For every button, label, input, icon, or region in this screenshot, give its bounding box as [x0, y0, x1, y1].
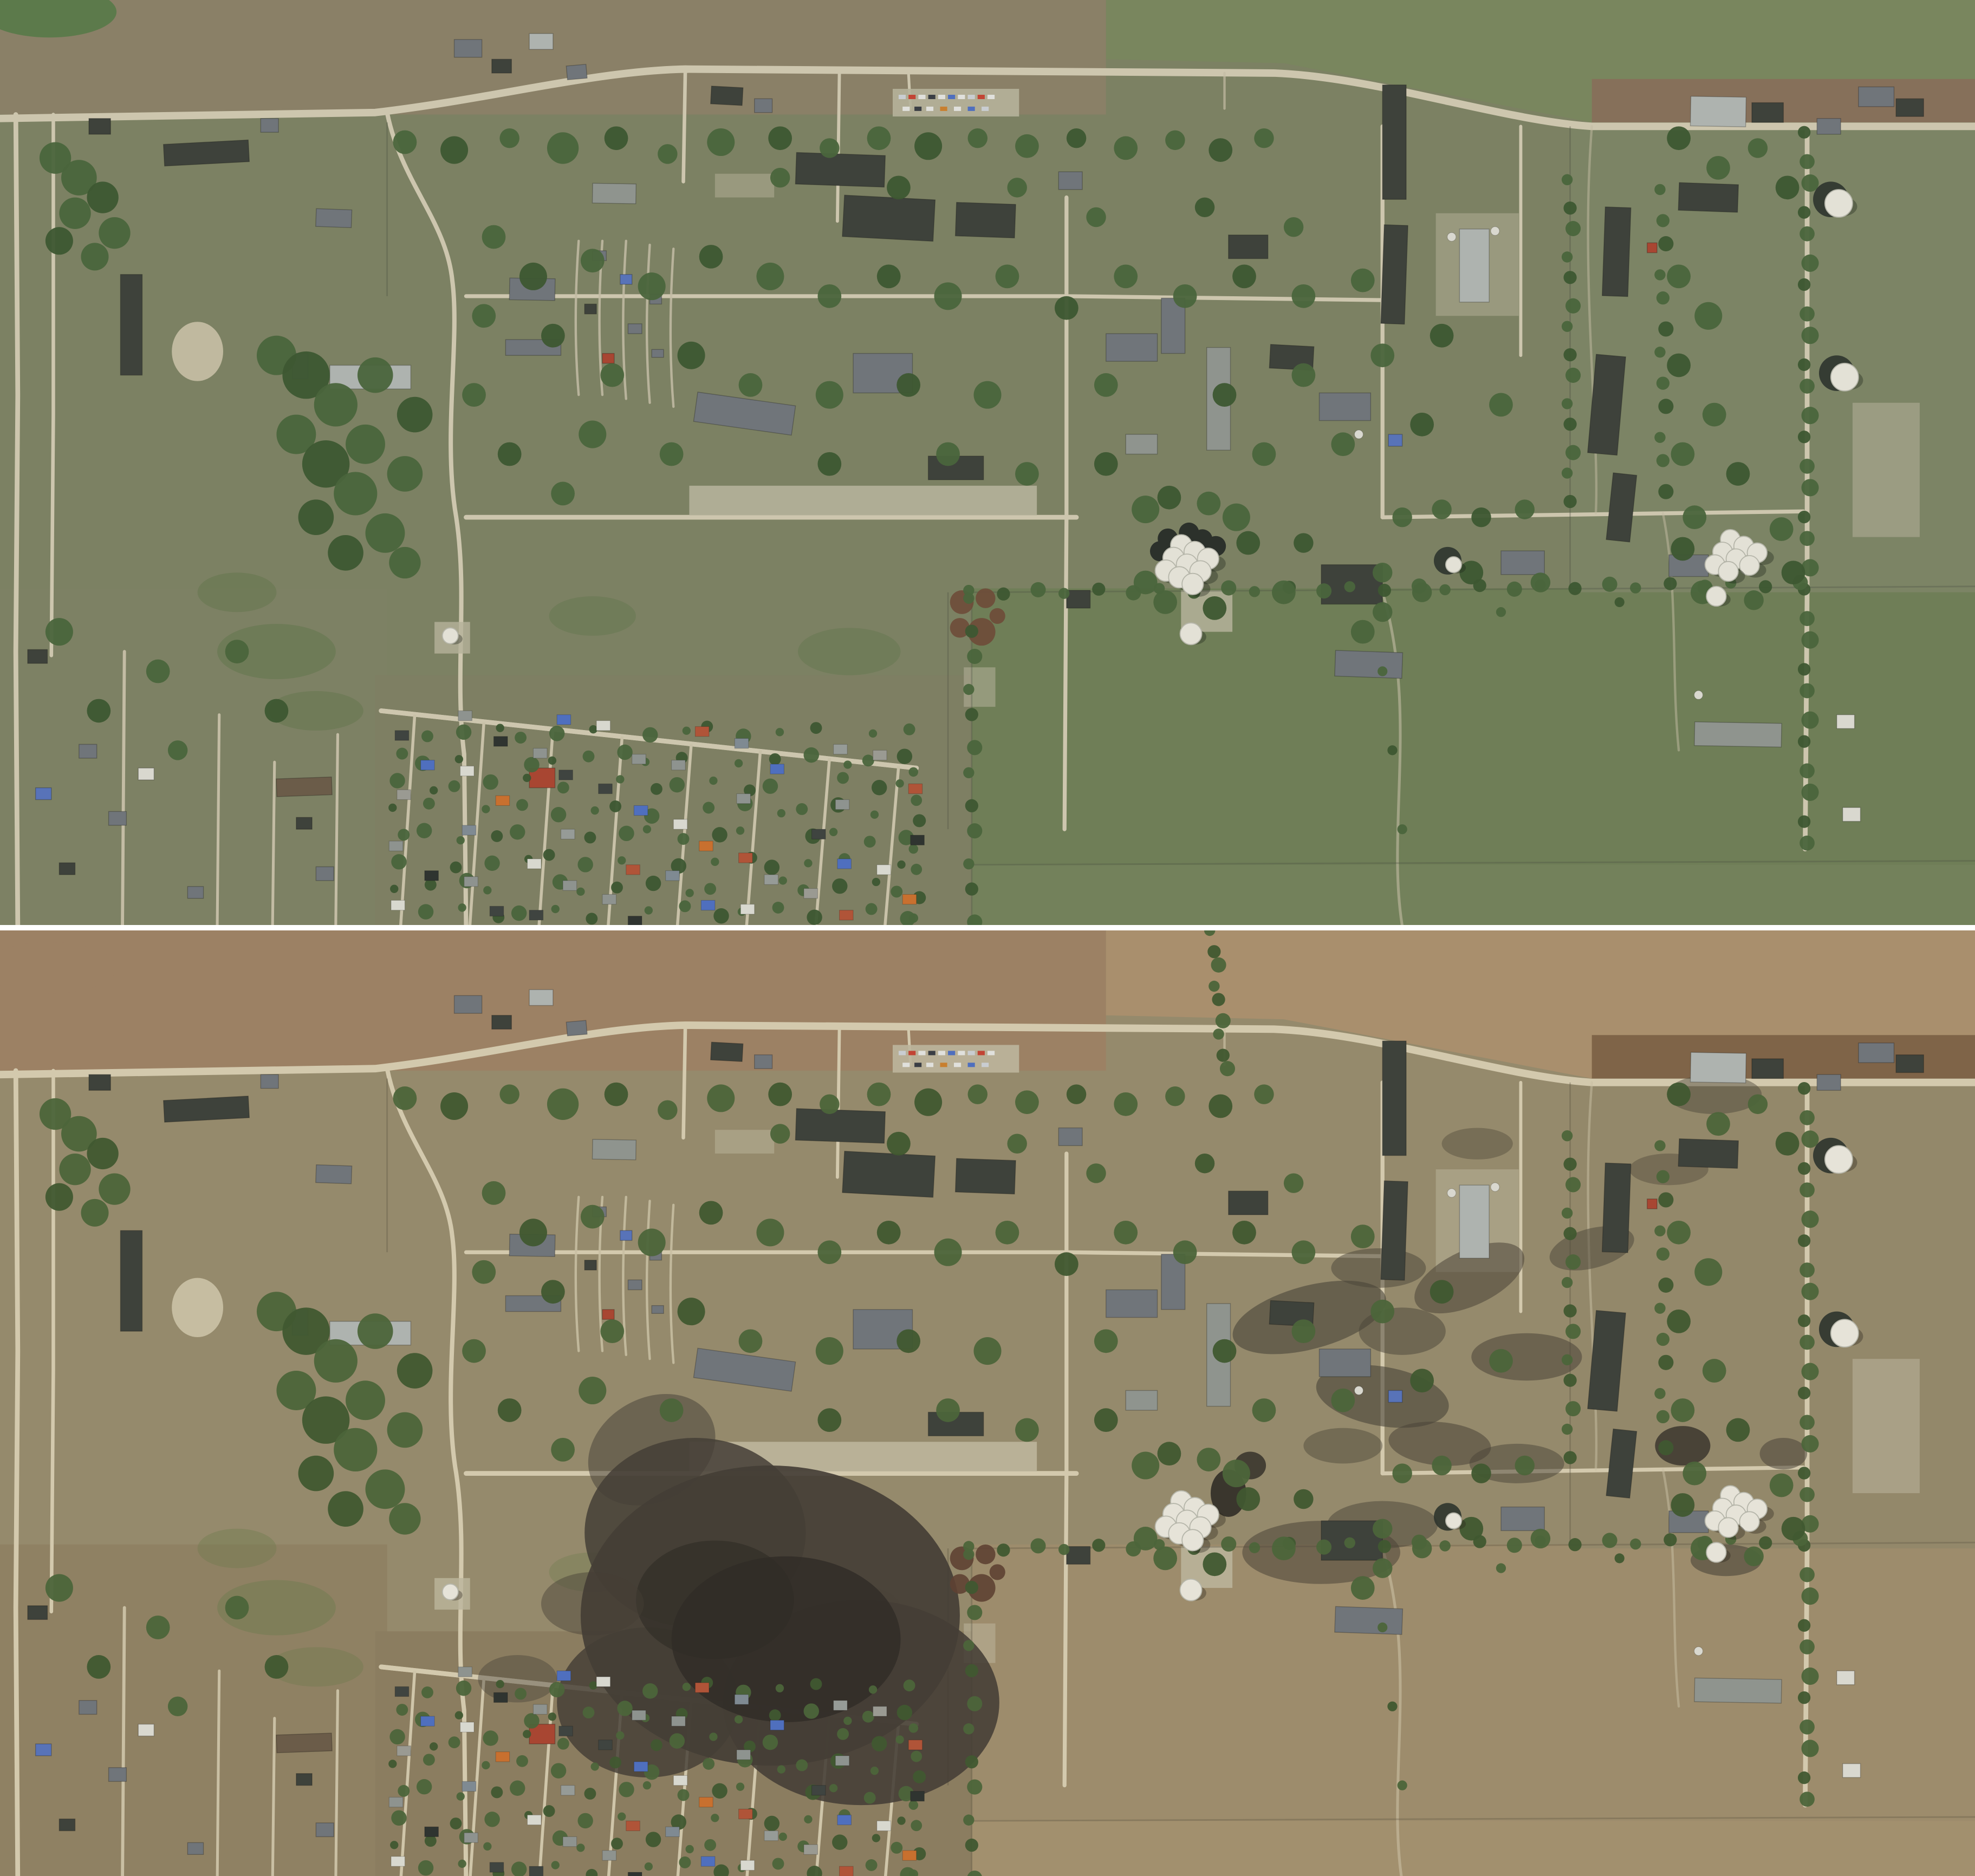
- building: [1694, 1678, 1782, 1703]
- tree-cluster: [703, 802, 714, 814]
- tree-cluster: [591, 1762, 599, 1770]
- tree-cluster: [1212, 993, 1225, 1006]
- tree-cluster: [1568, 1538, 1581, 1551]
- tree-cluster: [997, 588, 1010, 601]
- tree-cluster: [617, 745, 632, 760]
- tree-cluster: [483, 1842, 491, 1851]
- tree-cluster: [1158, 486, 1181, 510]
- tree-cluster: [686, 889, 694, 897]
- tree-cluster: [450, 862, 462, 874]
- village-house: [462, 1781, 476, 1791]
- tree-cluster: [1067, 128, 1086, 148]
- building: [261, 1074, 278, 1089]
- small-dome: [1447, 1189, 1456, 1197]
- tree-cluster: [265, 1655, 289, 1679]
- building: [316, 1823, 334, 1837]
- tree-cluster: [609, 800, 621, 812]
- village-house: [557, 1671, 571, 1680]
- village-house: [391, 900, 405, 910]
- tree-cluster: [965, 1581, 978, 1594]
- tree-cluster: [1213, 1339, 1237, 1363]
- tree-cluster: [1439, 1540, 1450, 1551]
- tree-cluster: [577, 857, 593, 872]
- tree-cluster: [1798, 1691, 1810, 1704]
- building: [529, 34, 553, 49]
- concrete-pad: [893, 1045, 1019, 1072]
- tree-cluster: [1654, 1140, 1665, 1151]
- tree-cluster: [1799, 836, 1815, 851]
- tree-cluster: [1565, 1401, 1581, 1416]
- tree-cluster: [1284, 217, 1303, 237]
- building: [1896, 1055, 1924, 1073]
- tree-cluster: [1432, 1456, 1451, 1475]
- tree-cluster: [768, 126, 792, 150]
- tree-cluster: [1802, 1283, 1819, 1300]
- village-house: [812, 829, 826, 839]
- building: [1106, 1290, 1158, 1318]
- tree-cluster: [298, 499, 334, 535]
- tree-cluster: [1030, 582, 1045, 597]
- village-house: [911, 1792, 925, 1801]
- tree-cluster: [1565, 445, 1581, 460]
- field-region: [798, 628, 901, 675]
- tree-cluster: [914, 1089, 942, 1116]
- village-house: [527, 859, 541, 869]
- tree-cluster: [869, 1685, 877, 1693]
- building: [1896, 99, 1924, 116]
- tree-cluster: [1430, 1280, 1454, 1304]
- tree-cluster: [483, 1730, 498, 1745]
- tree-cluster: [1507, 1538, 1522, 1553]
- radome: [1180, 1579, 1201, 1601]
- village-house: [533, 1704, 547, 1714]
- parked-car: [914, 1063, 921, 1067]
- burn-scar: [1442, 1128, 1513, 1160]
- tree-cluster: [678, 342, 705, 369]
- tree-cluster: [699, 245, 723, 269]
- tree-cluster: [418, 904, 433, 919]
- tree-cluster: [1656, 291, 1669, 304]
- building: [1320, 1349, 1371, 1377]
- tree-cluster: [1798, 1162, 1810, 1175]
- tree-cluster: [1254, 1084, 1274, 1104]
- tree-cluster: [1782, 1517, 1805, 1541]
- tree-cluster: [965, 1755, 978, 1768]
- building: [1388, 1390, 1402, 1402]
- village-house: [490, 906, 504, 916]
- tree-cluster: [963, 592, 974, 603]
- tree-cluster: [704, 1839, 716, 1851]
- tree-cluster: [1220, 1061, 1235, 1076]
- tree-cluster: [872, 780, 887, 795]
- building: [28, 1606, 47, 1620]
- tree-cluster: [430, 1742, 438, 1750]
- tree-cluster: [769, 753, 781, 765]
- burn-scar: [1760, 1438, 1808, 1469]
- open-reservoir: [976, 1545, 995, 1564]
- tree-cluster: [1430, 324, 1454, 348]
- tree-cluster: [1798, 206, 1810, 219]
- building: [1126, 1390, 1157, 1410]
- building: [89, 1074, 111, 1090]
- building: [1067, 590, 1090, 608]
- tree-cluster: [1799, 1182, 1815, 1197]
- tree-cluster: [1667, 265, 1691, 289]
- tree-cluster: [499, 1084, 519, 1104]
- building: [628, 324, 642, 334]
- tree-cluster: [1664, 1533, 1677, 1546]
- tree-cluster: [1602, 577, 1617, 592]
- tree-cluster: [772, 1858, 784, 1870]
- tree-cluster: [965, 1664, 978, 1677]
- tree-cluster: [600, 1319, 624, 1343]
- tree-cluster: [346, 425, 385, 464]
- tree-cluster: [1232, 265, 1256, 289]
- tree-cluster: [576, 888, 584, 896]
- tree-cluster: [1471, 1463, 1491, 1483]
- parked-car: [914, 107, 921, 111]
- building: [316, 867, 334, 881]
- tree-cluster: [1236, 1487, 1260, 1511]
- small-dome: [1491, 1183, 1499, 1191]
- tree-cluster: [968, 128, 987, 148]
- tree-cluster: [1197, 1448, 1220, 1471]
- building: [592, 1139, 636, 1160]
- tree-cluster: [450, 1818, 462, 1829]
- tree-cluster: [491, 1786, 503, 1798]
- tree-cluster: [1799, 1487, 1815, 1502]
- tree-cluster: [541, 324, 565, 348]
- road: [684, 1025, 686, 1138]
- village-house: [695, 727, 709, 737]
- tree-cluster: [1055, 296, 1079, 320]
- tree-cluster: [314, 383, 358, 426]
- tree-cluster: [1252, 442, 1276, 466]
- radome: [443, 628, 458, 643]
- tree-cluster: [472, 1260, 496, 1284]
- tree-cluster: [1158, 1442, 1181, 1465]
- tree-cluster: [1654, 269, 1665, 280]
- tree-cluster: [557, 781, 569, 793]
- tree-cluster: [1209, 981, 1219, 992]
- tree-cluster: [1802, 1587, 1819, 1605]
- tree-cluster: [1055, 1252, 1079, 1276]
- building: [1694, 722, 1782, 747]
- tree-cluster: [1412, 582, 1432, 602]
- tree-cluster: [1252, 1398, 1276, 1422]
- building: [652, 349, 664, 357]
- village-house: [596, 1677, 610, 1686]
- tree-cluster: [1658, 236, 1673, 251]
- village-house: [701, 1857, 715, 1866]
- tree-cluster: [1291, 1240, 1315, 1264]
- tree-cluster: [866, 1859, 878, 1871]
- tree-cluster: [619, 1782, 634, 1797]
- tree-cluster: [225, 1596, 249, 1620]
- tree-cluster: [646, 876, 661, 891]
- tree-cluster: [1658, 1192, 1673, 1207]
- village-house: [877, 865, 891, 875]
- small-dome: [1354, 1386, 1363, 1395]
- tree-cluster: [579, 1377, 606, 1404]
- tree-cluster: [1568, 582, 1581, 595]
- building: [1459, 229, 1489, 302]
- building: [1817, 1074, 1841, 1090]
- satellite-image-before: [0, 0, 1975, 925]
- tree-cluster: [965, 625, 978, 638]
- tree-cluster: [577, 1813, 593, 1828]
- building: [316, 209, 352, 227]
- tree-cluster: [897, 1705, 912, 1720]
- tree-cluster: [1802, 712, 1819, 729]
- village-house: [804, 889, 818, 898]
- tree-cluster: [756, 263, 784, 290]
- building: [1229, 1191, 1268, 1215]
- village-house: [672, 1716, 686, 1726]
- image-divider: [0, 925, 1975, 930]
- tree-cluster: [1798, 1314, 1810, 1327]
- tree-cluster: [543, 849, 555, 861]
- building: [620, 275, 632, 284]
- tree-cluster: [391, 1810, 406, 1826]
- tree-cluster: [1209, 1095, 1232, 1118]
- tree-cluster: [1563, 495, 1576, 508]
- building: [1229, 235, 1268, 259]
- tree-cluster: [1221, 581, 1236, 596]
- concrete-pad: [689, 486, 1037, 516]
- tree-cluster: [458, 1860, 466, 1868]
- tree-cluster: [1744, 1547, 1763, 1566]
- tree-cluster: [1562, 467, 1573, 478]
- village-house: [389, 841, 403, 851]
- tree-cluster: [817, 452, 841, 476]
- tree-cluster: [1114, 136, 1138, 160]
- tree-cluster: [483, 774, 498, 790]
- tree-cluster: [763, 1735, 778, 1750]
- tree-cluster: [1667, 354, 1691, 377]
- tree-cluster: [967, 1696, 982, 1711]
- parked-car: [902, 107, 909, 111]
- tree-cluster: [99, 1173, 130, 1204]
- tree-cluster: [1216, 1013, 1231, 1028]
- tree-cluster: [87, 1655, 111, 1679]
- building: [1817, 119, 1841, 134]
- tree-cluster: [1802, 255, 1819, 272]
- village-house: [877, 1821, 891, 1831]
- village-house: [902, 894, 917, 904]
- tree-cluster: [387, 456, 423, 492]
- tree-cluster: [1496, 607, 1506, 617]
- tree-cluster: [398, 829, 410, 841]
- tree-cluster: [996, 1221, 1019, 1245]
- tree-cluster: [482, 805, 490, 813]
- tree-cluster: [396, 748, 408, 760]
- tree-cluster: [581, 1205, 605, 1229]
- parked-car: [928, 95, 935, 99]
- tree-cluster: [547, 1089, 579, 1120]
- tree-cluster: [1489, 1349, 1513, 1373]
- tree-cluster: [968, 1084, 987, 1104]
- building: [276, 777, 332, 797]
- tree-cluster: [511, 906, 527, 921]
- tree-cluster: [643, 1781, 651, 1789]
- tree-cluster: [1802, 174, 1819, 192]
- tree-cluster: [1373, 1519, 1392, 1538]
- tree-cluster: [1656, 1333, 1669, 1346]
- tree-cluster: [1272, 581, 1296, 604]
- tree-cluster: [709, 777, 717, 785]
- radome: [1825, 1145, 1853, 1173]
- tree-cluster: [1759, 580, 1772, 593]
- tree-cluster: [523, 774, 531, 782]
- tree-cluster: [756, 1219, 784, 1246]
- tree-cluster: [1094, 373, 1118, 397]
- village-house: [458, 711, 472, 720]
- tree-cluster: [1471, 507, 1491, 527]
- tree-cluster: [1798, 1467, 1810, 1479]
- tree-cluster: [913, 1770, 926, 1783]
- tree-cluster: [1563, 1451, 1576, 1464]
- tree-cluster: [1656, 1410, 1669, 1423]
- tree-cluster: [872, 1736, 887, 1751]
- tree-cluster: [1630, 582, 1641, 593]
- tree-cluster: [909, 844, 919, 854]
- village-house: [673, 819, 687, 829]
- tree-cluster: [1658, 399, 1673, 414]
- tree-cluster: [712, 1783, 727, 1799]
- building: [628, 1280, 642, 1289]
- building: [1335, 650, 1403, 679]
- building: [1058, 172, 1082, 190]
- tree-cluster: [1114, 1221, 1138, 1245]
- tree-cluster: [328, 1491, 363, 1527]
- tree-cluster: [1802, 1435, 1819, 1452]
- tree-cluster: [679, 900, 691, 912]
- tree-cluster: [735, 1715, 743, 1723]
- tree-cluster: [600, 363, 624, 387]
- tree-cluster: [963, 1814, 974, 1825]
- tree-cluster: [397, 1353, 433, 1389]
- tree-cluster: [551, 1861, 560, 1869]
- tree-cluster: [1565, 368, 1581, 383]
- tree-cluster: [1398, 824, 1407, 834]
- building: [1388, 434, 1402, 446]
- tree-cluster: [816, 1337, 843, 1365]
- village-house: [599, 1740, 613, 1750]
- tree-cluster: [1654, 347, 1665, 357]
- village-house: [628, 916, 642, 925]
- tree-cluster: [1378, 584, 1391, 597]
- village-house: [563, 881, 577, 890]
- tree-cluster: [1802, 407, 1819, 424]
- tree-cluster: [909, 1723, 919, 1733]
- building: [109, 1768, 127, 1782]
- tree-cluster: [1798, 735, 1810, 748]
- village-house: [873, 750, 887, 760]
- tree-cluster: [1563, 1227, 1576, 1240]
- building: [138, 1724, 154, 1736]
- tree-cluster: [887, 1132, 911, 1156]
- tree-cluster: [872, 1834, 880, 1842]
- tree-cluster: [334, 472, 377, 515]
- parked-car: [954, 107, 961, 111]
- tree-cluster: [963, 1723, 974, 1734]
- tree-cluster: [810, 1678, 822, 1690]
- tree-cluster: [418, 1860, 433, 1875]
- tree-cluster: [457, 836, 465, 844]
- tree-cluster: [1671, 1398, 1695, 1422]
- tree-cluster: [914, 132, 942, 160]
- open-reservoir: [990, 1564, 1005, 1580]
- tree-cluster: [967, 740, 982, 755]
- tree-cluster: [1799, 1792, 1815, 1807]
- tree-cluster: [1344, 1538, 1355, 1548]
- road: [122, 1608, 125, 1876]
- tree-cluster: [643, 825, 651, 833]
- concrete-pad: [715, 1130, 774, 1154]
- tree-cluster: [1114, 1092, 1138, 1116]
- tree-cluster: [911, 864, 922, 875]
- village-house: [834, 1701, 848, 1710]
- tree-cluster: [936, 442, 960, 466]
- building: [620, 1230, 632, 1240]
- tree-cluster: [398, 1785, 410, 1797]
- tree-cluster: [1565, 298, 1581, 314]
- tree-cluster: [934, 1239, 962, 1266]
- tree-cluster: [963, 858, 974, 869]
- satellite-image-after: [0, 930, 1975, 1876]
- village-house: [496, 796, 510, 805]
- tree-cluster: [524, 757, 539, 772]
- village-house: [840, 910, 854, 920]
- tree-cluster: [1802, 1363, 1819, 1380]
- burn-scar: [541, 1572, 644, 1636]
- tree-cluster: [1802, 1130, 1819, 1148]
- tree-cluster: [877, 1221, 901, 1245]
- tree-cluster: [499, 128, 519, 148]
- village-house: [873, 1706, 887, 1716]
- building: [261, 119, 278, 133]
- building: [1843, 807, 1861, 822]
- tree-cluster: [617, 1701, 632, 1716]
- tree-cluster: [491, 830, 503, 842]
- parked-car: [902, 1063, 909, 1067]
- tree-cluster: [397, 397, 433, 433]
- tree-cluster: [638, 1229, 666, 1256]
- tree-cluster: [1173, 284, 1197, 308]
- tree-cluster: [523, 1730, 531, 1738]
- tree-cluster: [895, 1735, 904, 1743]
- tree-cluster: [1153, 590, 1177, 614]
- tree-cluster: [1799, 379, 1815, 394]
- road: [1064, 198, 1067, 830]
- concrete-pad: [1853, 403, 1920, 537]
- village-house: [395, 731, 409, 740]
- building: [1381, 1181, 1408, 1280]
- tree-cluster: [1562, 1130, 1573, 1141]
- tree-cluster: [870, 811, 879, 819]
- tree-cluster: [736, 826, 744, 835]
- tree-cluster: [1799, 531, 1815, 546]
- tree-cluster: [810, 722, 822, 734]
- tree-cluster: [1615, 597, 1625, 607]
- tree-cluster: [1802, 1210, 1819, 1228]
- tree-cluster: [482, 1761, 490, 1769]
- tree-cluster: [421, 1686, 433, 1698]
- village-house: [701, 900, 715, 910]
- storage-tank-white: [1718, 1517, 1738, 1537]
- village-house: [596, 721, 610, 731]
